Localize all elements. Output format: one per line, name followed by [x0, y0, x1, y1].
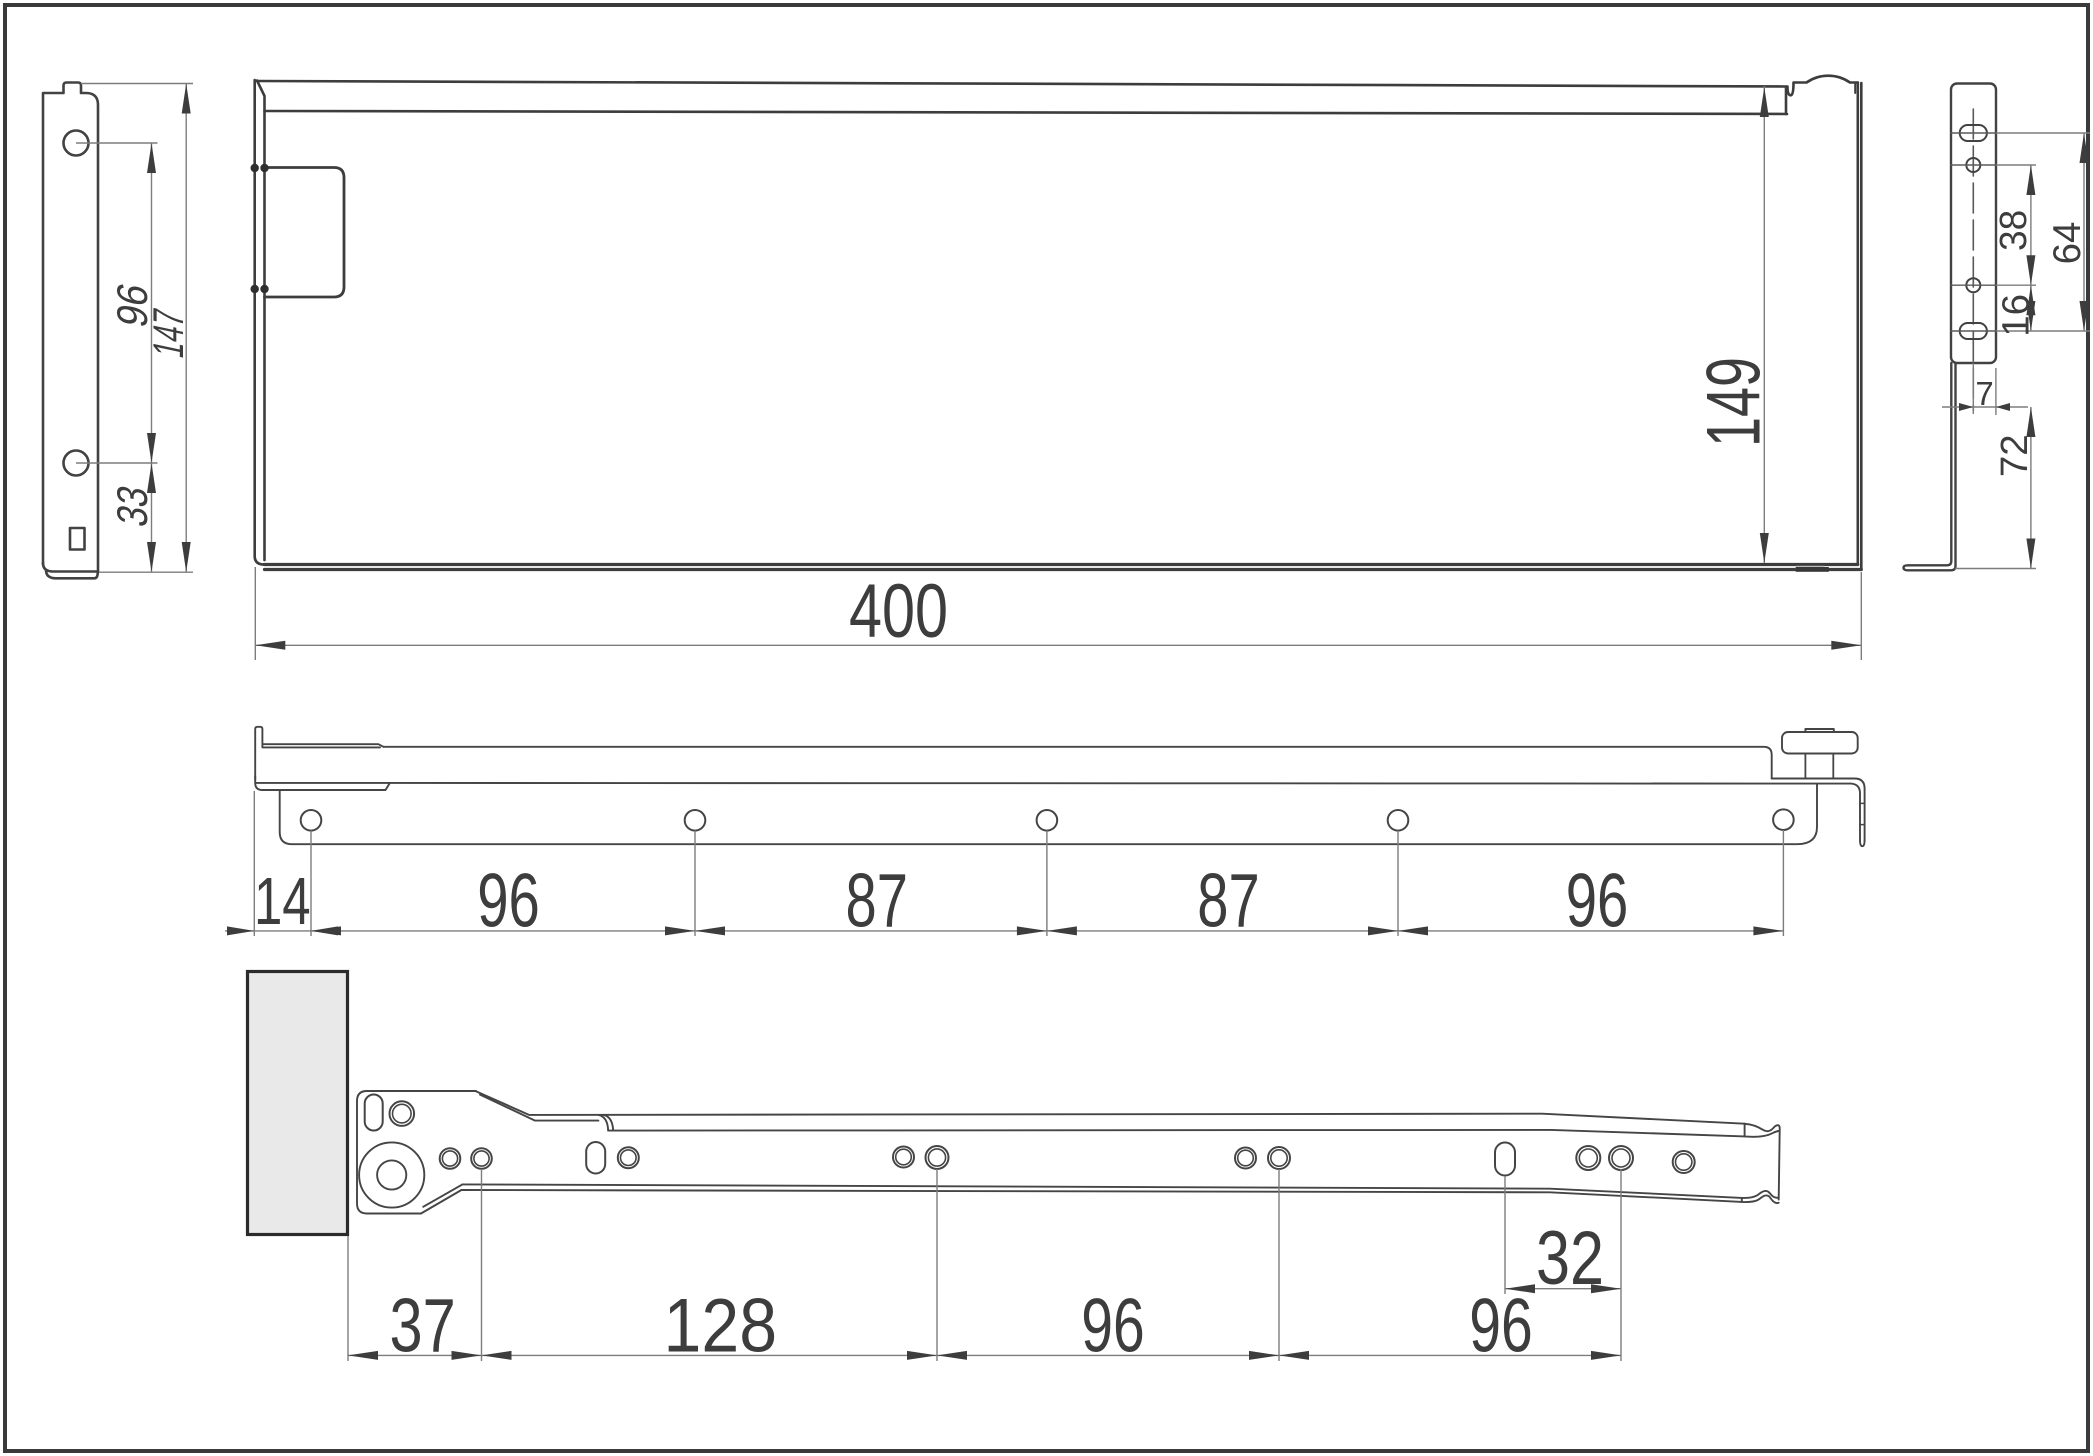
svg-text:64: 64 — [2046, 222, 2089, 265]
svg-text:7: 7 — [1975, 375, 1993, 412]
svg-text:128: 128 — [664, 1283, 778, 1368]
svg-text:96: 96 — [1469, 1283, 1533, 1368]
svg-text:400: 400 — [849, 569, 948, 654]
svg-text:96: 96 — [477, 859, 540, 944]
svg-text:32: 32 — [1536, 1216, 1604, 1301]
svg-text:149: 149 — [1692, 357, 1777, 447]
svg-text:87: 87 — [846, 859, 908, 944]
svg-text:96: 96 — [1081, 1283, 1145, 1368]
svg-text:37: 37 — [390, 1283, 456, 1368]
svg-text:38: 38 — [1993, 210, 2035, 251]
svg-text:14: 14 — [254, 864, 311, 939]
svg-text:72: 72 — [1994, 434, 2036, 477]
svg-text:87: 87 — [1197, 859, 1259, 944]
svg-text:16: 16 — [1995, 294, 2037, 337]
svg-text:96: 96 — [1566, 859, 1629, 944]
